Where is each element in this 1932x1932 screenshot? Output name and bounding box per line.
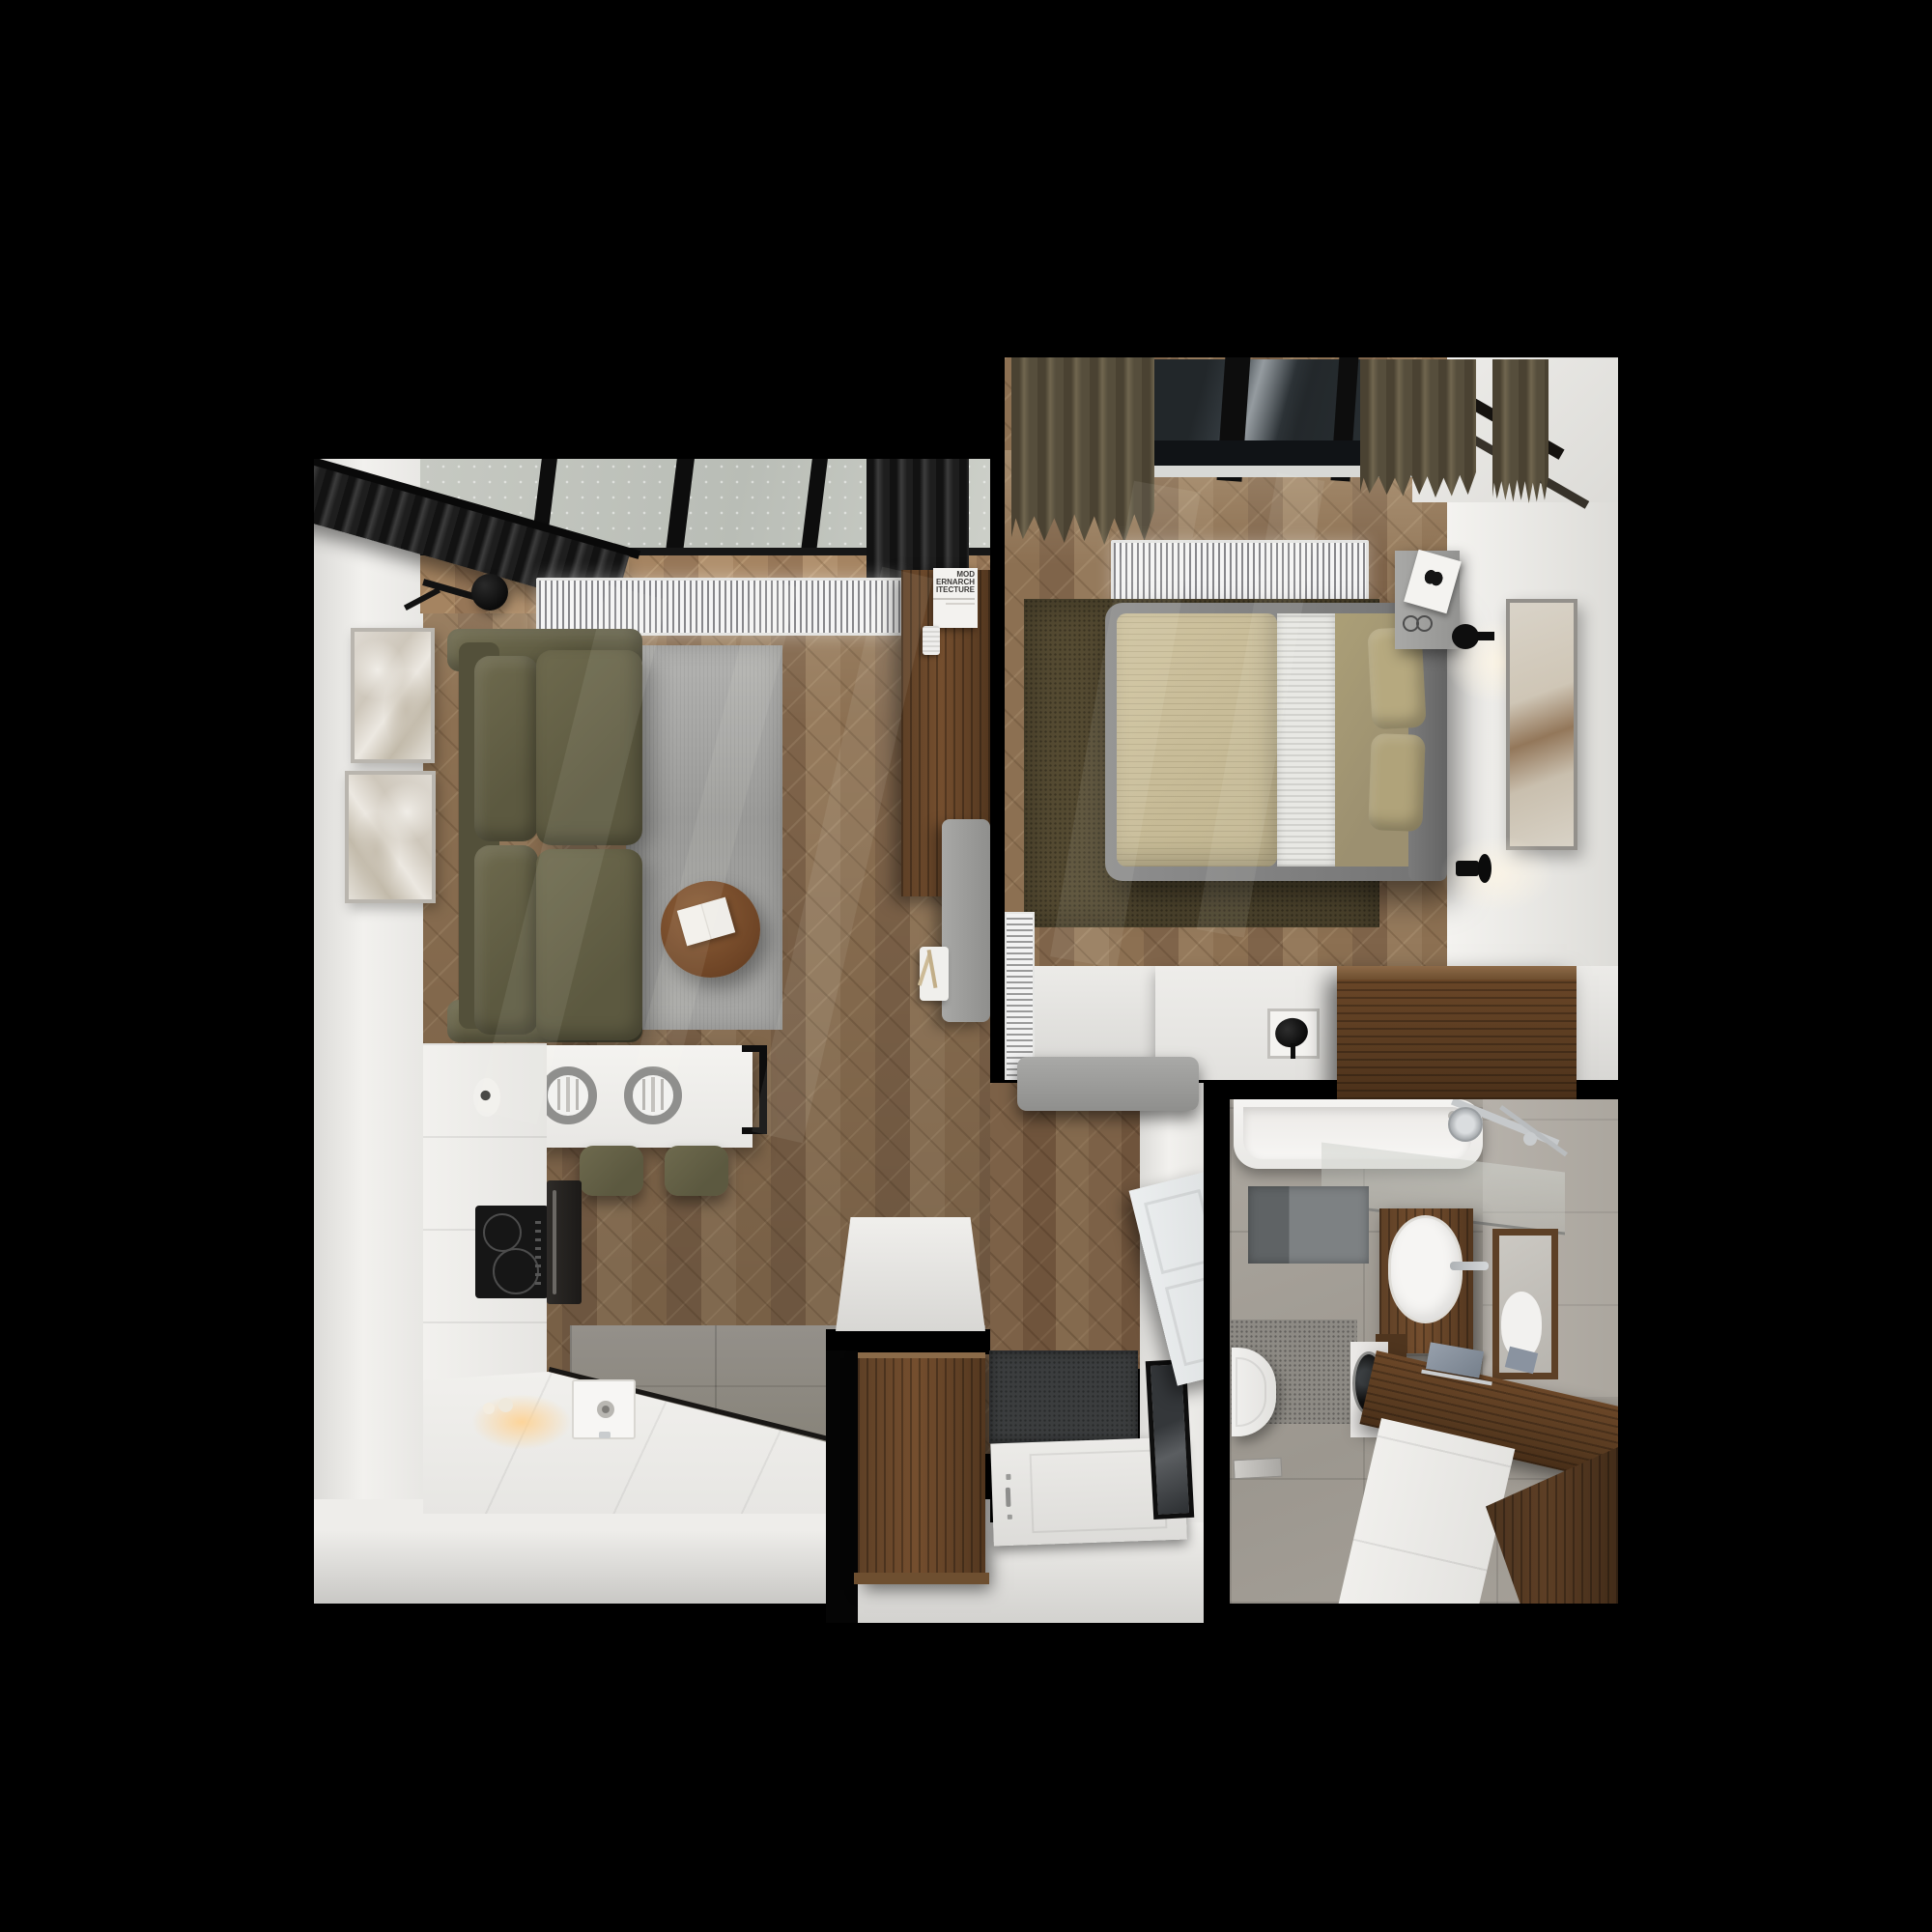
cutlery-icon bbox=[651, 1077, 655, 1112]
cutlery-icon bbox=[566, 1077, 570, 1112]
artwork-frame-top bbox=[351, 628, 435, 763]
gray-bench bbox=[942, 819, 990, 1022]
artwork-frame-bottom bbox=[345, 771, 436, 903]
bedroom-artwork bbox=[1506, 599, 1577, 850]
toilet-seat-line bbox=[1236, 1357, 1266, 1427]
desk-lamp-stem bbox=[1291, 1043, 1295, 1059]
bedroom-walnut-dresser bbox=[1337, 966, 1577, 1107]
white-panel-radiator bbox=[1005, 912, 1035, 1080]
door-panel-line bbox=[1165, 1273, 1204, 1366]
floor-drain-plate bbox=[1234, 1458, 1283, 1480]
sink-faucet-icon bbox=[1450, 1262, 1489, 1270]
sink-drain-icon bbox=[597, 1401, 614, 1418]
doormat bbox=[989, 1350, 1138, 1443]
cutlery-icon bbox=[661, 1079, 664, 1110]
living-radiator-grille bbox=[536, 578, 904, 636]
cooktop-ring-icon bbox=[493, 1248, 539, 1294]
induction-cooktop bbox=[475, 1206, 549, 1298]
dresser-top-edge bbox=[1337, 966, 1577, 980]
architecture-poster: MOD ERNARCH ITECTURE bbox=[933, 568, 978, 628]
sofa-seat-cushion bbox=[536, 849, 642, 1040]
paper-towel-roll bbox=[473, 1078, 500, 1117]
bath-mat bbox=[1248, 1186, 1369, 1264]
bedroom-gray-bench bbox=[1017, 1057, 1199, 1111]
wardrobe-plinth bbox=[854, 1573, 989, 1584]
sofa-back-cushion bbox=[474, 656, 538, 841]
cooktop-controls bbox=[535, 1217, 541, 1285]
poster-body-lines bbox=[933, 598, 975, 600]
cutlery-icon bbox=[642, 1079, 645, 1110]
oven-handle bbox=[553, 1190, 556, 1294]
bed-duvet-striped bbox=[1117, 613, 1277, 867]
bed-pillow bbox=[1368, 733, 1425, 832]
kitchen-sink bbox=[572, 1379, 636, 1439]
wall-lamp-icon bbox=[471, 574, 508, 611]
bathroom-mirror bbox=[1492, 1229, 1558, 1379]
bathroom bbox=[1230, 1099, 1618, 1604]
artwork-canvas bbox=[349, 775, 432, 899]
built-in-oven bbox=[547, 1180, 582, 1304]
artwork-canvas bbox=[355, 632, 431, 759]
poster-body-lines bbox=[946, 603, 975, 605]
door-panel-line bbox=[1030, 1449, 1168, 1533]
poster-title-line3: ITECTURE bbox=[933, 586, 975, 594]
place-setting-plate bbox=[624, 1066, 682, 1124]
wall-lamp-stem bbox=[1477, 632, 1494, 640]
bar-metal-frame bbox=[742, 1045, 767, 1052]
bar-metal-frame bbox=[759, 1045, 767, 1134]
cutlery-icon bbox=[576, 1079, 579, 1110]
reading-glasses-icon bbox=[1416, 615, 1433, 632]
wall-lamp-icon bbox=[1478, 854, 1492, 883]
hallway bbox=[826, 1083, 1204, 1623]
bar-stool bbox=[665, 1146, 728, 1196]
artwork-canvas bbox=[1510, 603, 1574, 846]
place-setting-plate bbox=[539, 1066, 597, 1124]
shower-mixer-icon bbox=[1523, 1132, 1537, 1146]
wall-lamp-icon bbox=[1452, 624, 1479, 649]
cooktop-ring-icon bbox=[483, 1213, 522, 1252]
apartment-floor-plan-render: MOD ERNARCH ITECTURE bbox=[0, 0, 1932, 1932]
bar-metal-frame bbox=[742, 1127, 767, 1134]
bottle-icon bbox=[498, 1398, 513, 1412]
bedroom-radiator-grille bbox=[1111, 540, 1369, 602]
door-lock-icon bbox=[1006, 1474, 1010, 1480]
living-left-wall bbox=[314, 459, 423, 1507]
wardrobe-top-edge bbox=[858, 1352, 985, 1358]
hall-wardrobe bbox=[858, 1352, 985, 1584]
door-lock-icon bbox=[1008, 1515, 1012, 1520]
butterfly-icon bbox=[1421, 566, 1447, 590]
cutlery-icon bbox=[557, 1079, 560, 1110]
bottle-icon bbox=[483, 1403, 495, 1414]
bar-stool bbox=[580, 1146, 643, 1196]
sofa-seat-cushion bbox=[536, 650, 642, 845]
sofa-back-cushion bbox=[474, 845, 538, 1035]
hall-floor-parquet bbox=[990, 1083, 1140, 1369]
bed-runner-blanket bbox=[1277, 613, 1335, 867]
wall-lamp-stem bbox=[1456, 861, 1479, 876]
wall-speaker bbox=[923, 626, 940, 655]
sink-faucet-icon bbox=[599, 1432, 611, 1438]
door-panel-line bbox=[1144, 1189, 1204, 1274]
door-handle-icon bbox=[1006, 1488, 1011, 1507]
shower-head-icon bbox=[1448, 1107, 1483, 1142]
white-console-table bbox=[836, 1217, 985, 1331]
